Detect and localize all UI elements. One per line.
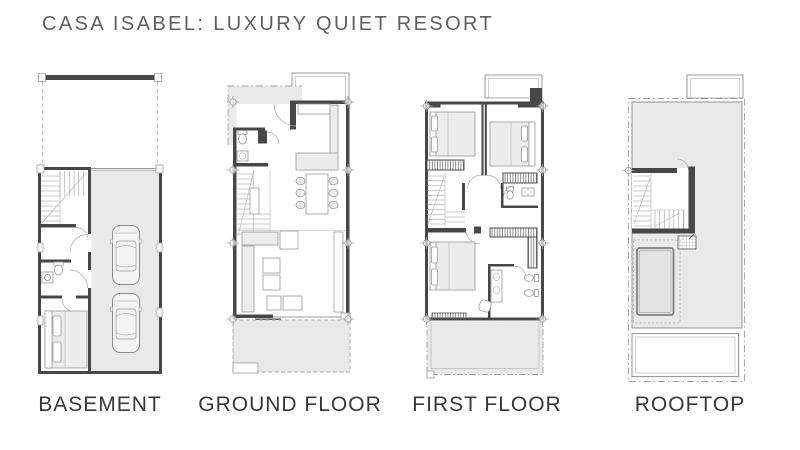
ottoman	[267, 296, 281, 310]
label-rooftop: ROOFTOP	[606, 393, 774, 419]
balcony-canopy	[485, 75, 542, 106]
dining-area	[296, 174, 338, 214]
window-slider	[432, 313, 466, 318]
label-first-floor: FIRST FLOOR	[403, 393, 571, 419]
bed-icon	[436, 242, 475, 290]
page-title: CASA ISABEL: LUXURY QUIET RESORT	[42, 13, 494, 36]
basement-floor-plan	[32, 66, 168, 382]
first-floor-plan	[418, 66, 554, 382]
armchair-icon	[280, 231, 298, 249]
bed-icon	[45, 311, 87, 368]
column-marker	[37, 165, 44, 173]
terrace-step	[233, 363, 258, 373]
ground-floor-plan	[222, 66, 378, 382]
terrace	[427, 321, 543, 379]
car-icon	[110, 294, 142, 353]
coffee-table	[263, 275, 280, 290]
column-marker	[156, 165, 163, 173]
coffee-table	[263, 258, 280, 273]
chair-icon	[329, 178, 338, 185]
chair-icon	[296, 178, 305, 185]
skylight-grille	[678, 234, 696, 249]
pool	[634, 240, 681, 323]
chair-icon	[329, 202, 338, 209]
ottoman	[283, 296, 302, 310]
toilet-icon	[507, 191, 513, 199]
toilet-icon	[525, 275, 534, 282]
garage	[91, 167, 159, 372]
driveway-projection-lines	[43, 82, 158, 167]
rooftop-plan	[622, 66, 754, 382]
chair-icon	[296, 202, 305, 209]
tv-cabinet	[334, 232, 343, 312]
sink-icon	[42, 272, 53, 283]
chair-icon	[296, 190, 305, 197]
chair-icon	[329, 190, 338, 197]
kitchen-island	[296, 153, 338, 170]
toilet-icon	[239, 134, 247, 144]
label-ground-floor: GROUND FLOOR	[198, 393, 382, 419]
street-edge	[39, 74, 162, 168]
toilet-icon	[55, 265, 63, 275]
toilet-icon	[507, 187, 514, 191]
kitchen-counter	[298, 104, 330, 114]
kitchen-counter	[330, 105, 338, 154]
sofa-icon	[242, 246, 254, 312]
balcony-canopy	[687, 75, 743, 98]
floor-plan-sheet: CASA ISABEL: LUXURY QUIET RESORT	[0, 0, 800, 450]
car-icon	[110, 226, 142, 285]
stair-enclosure	[623, 159, 696, 234]
bed-icon	[490, 122, 535, 166]
vanity-counter	[491, 270, 502, 302]
bed-icon	[430, 112, 475, 156]
terrace	[233, 320, 350, 373]
lower-roof-deck	[632, 334, 739, 377]
sideboard	[242, 232, 278, 245]
bidet-icon	[525, 290, 534, 297]
label-basement: BASEMENT	[28, 393, 172, 419]
dining-table	[306, 174, 328, 214]
